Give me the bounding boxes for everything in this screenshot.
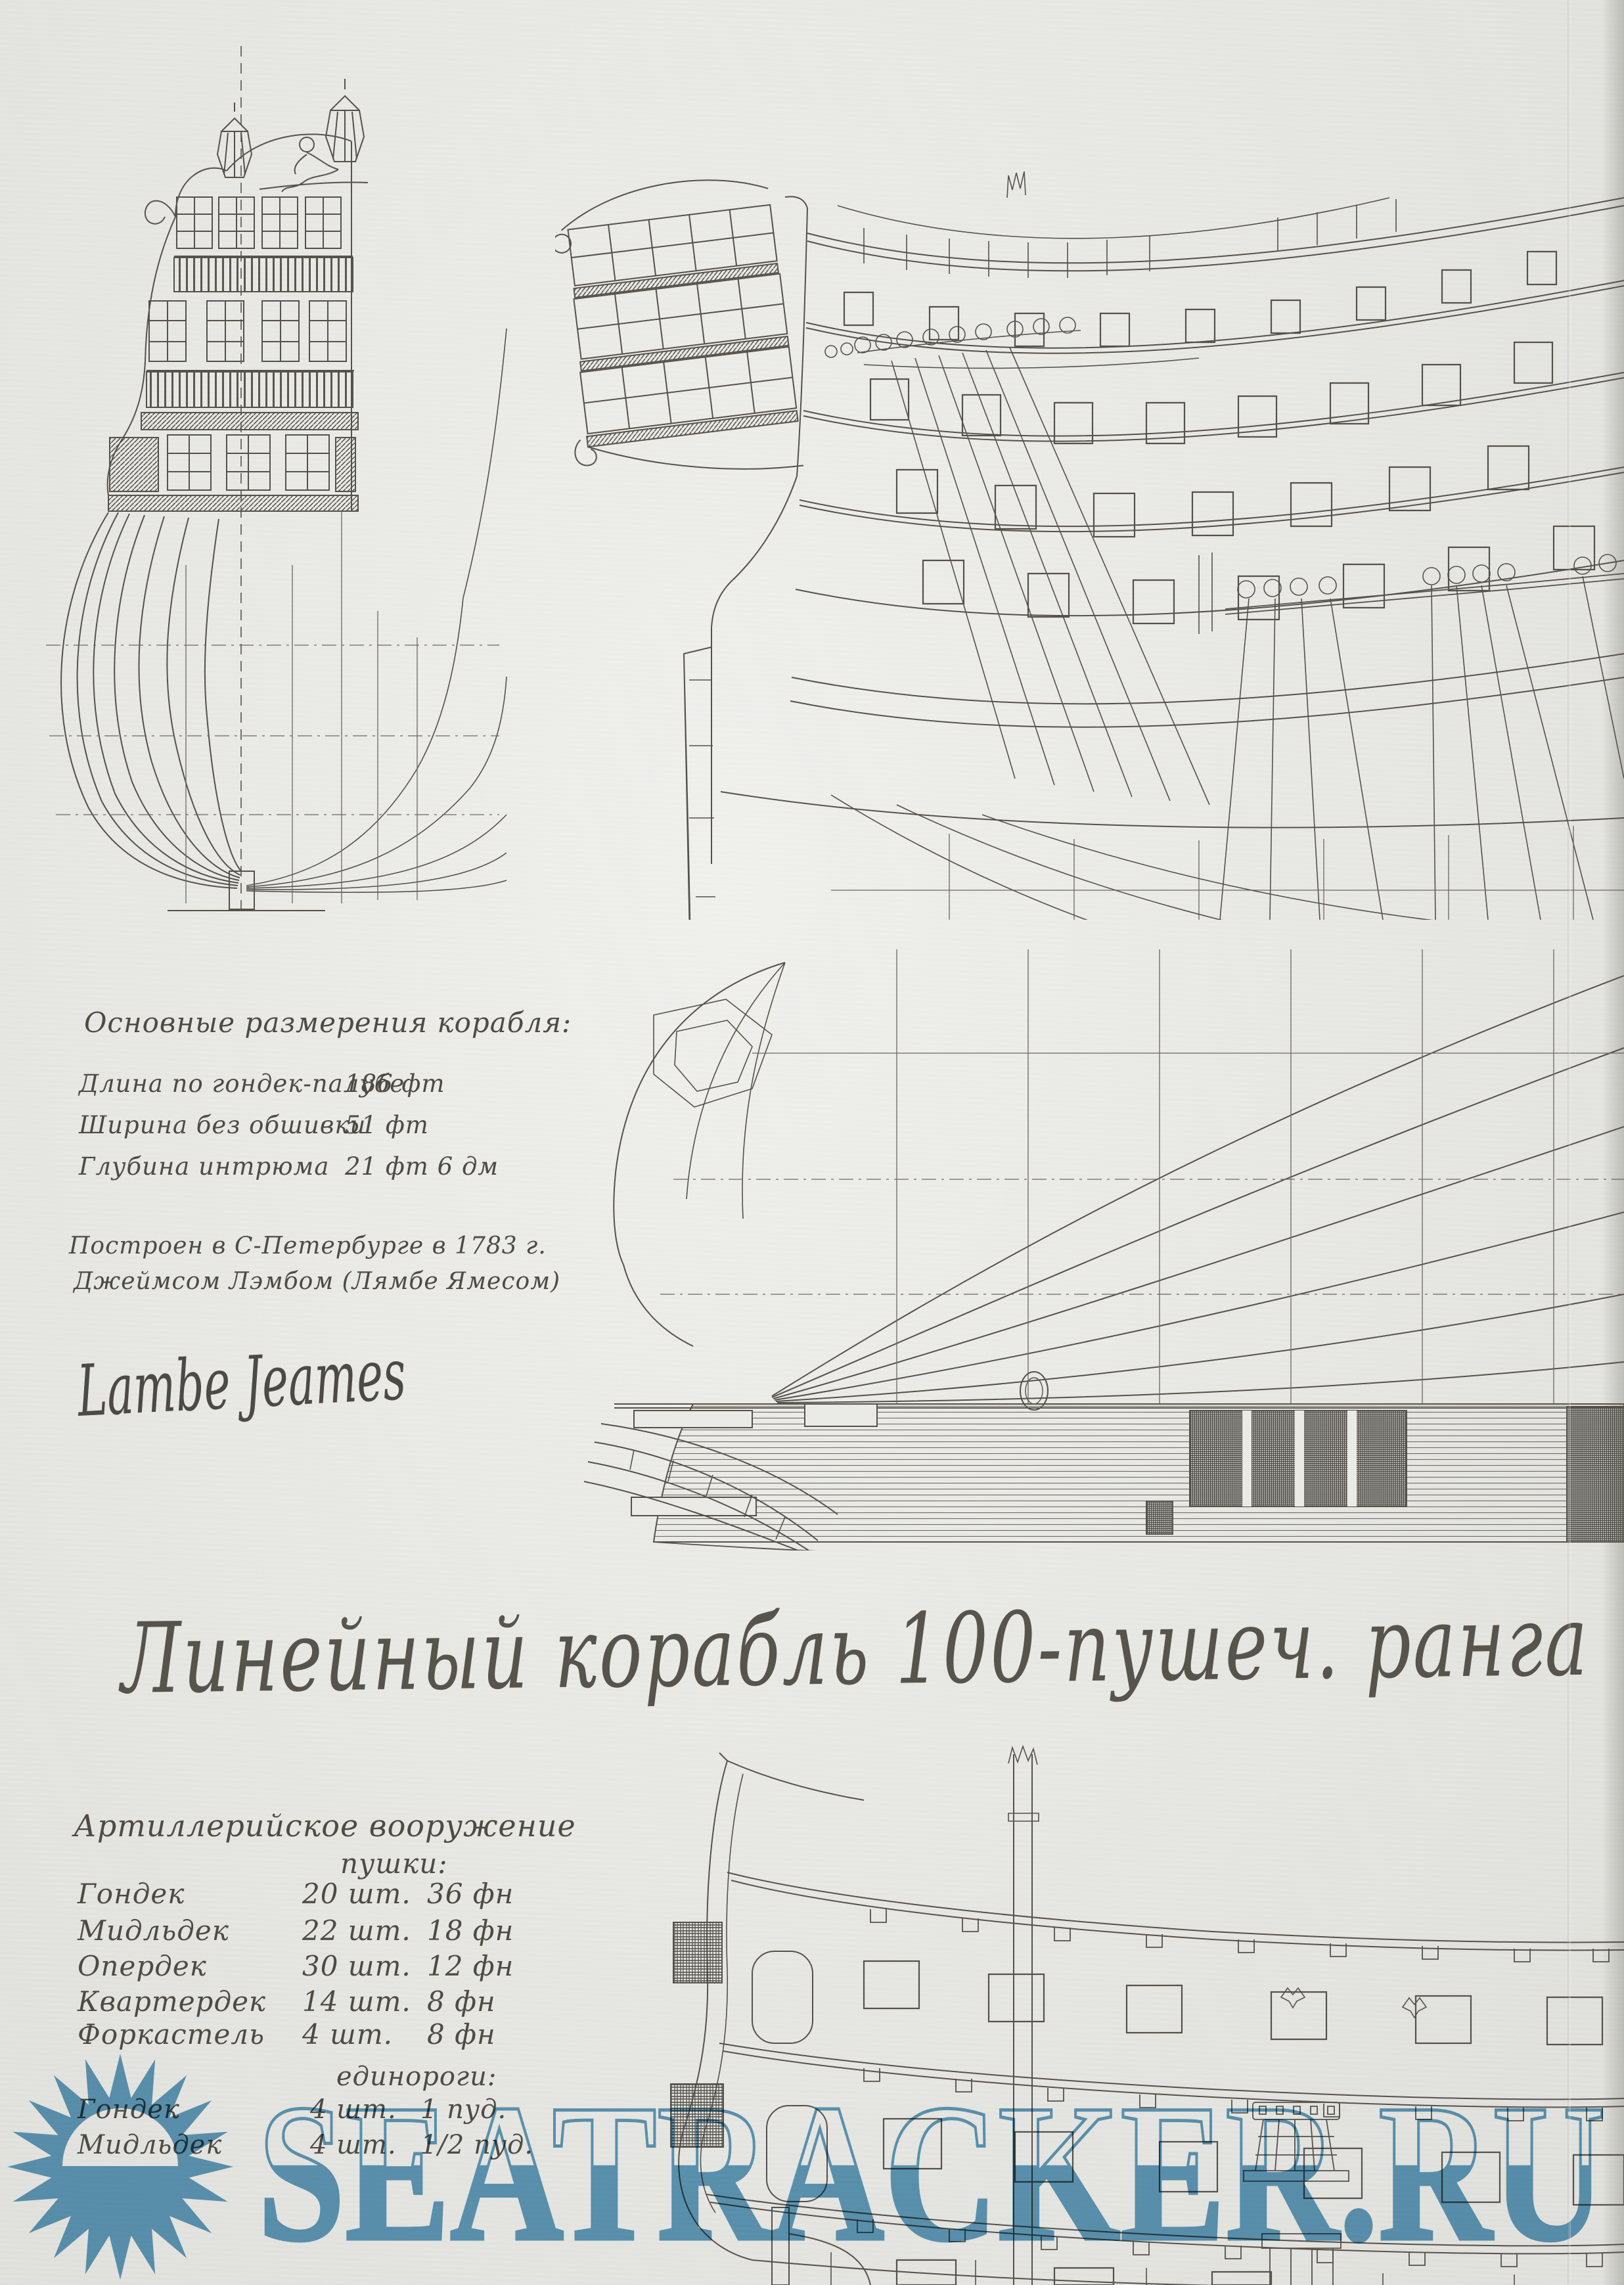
gun-qty: 22 шт. — [302, 1914, 411, 1947]
unicorn-row: Мидльдек 4 шт. 1/2 пуд. — [78, 2130, 577, 2160]
inboard-profile-drawing — [555, 1734, 1624, 2285]
unicorn-qty: 4 шт. — [310, 2130, 397, 2160]
dimensions-heading: Основные размерения корабля: — [84, 1007, 572, 1039]
dimension-label: Глубина интрюма — [79, 1152, 329, 1181]
builder-signature: Lambe Jeames — [69, 1324, 450, 1462]
gun-deck: Гондек — [78, 1878, 185, 1910]
half-breadth-plan-drawing — [555, 936, 1624, 1550]
gun-row: Мидльдек 22 шт. 18 фн — [78, 1914, 577, 1947]
stern-lantern-icon — [217, 79, 364, 177]
gun-qty: 4 шт. — [302, 2018, 393, 2050]
gun-qty: 14 шт. — [302, 1985, 411, 2018]
dimension-value: 21 фт 6 дм — [345, 1152, 499, 1181]
gun-caliber: 8 фн — [427, 1985, 496, 2018]
guns-subheading: пушки: — [340, 1847, 447, 1880]
unicorn-caliber: 1/2 пуд. — [420, 2130, 533, 2160]
gun-row: Квартердек 14 шт. 8 фн — [78, 1985, 577, 2018]
gun-caliber: 36 фн — [427, 1878, 514, 1910]
gun-deck: Мидльдек — [78, 1914, 229, 1947]
armament-heading: Артиллерийское вооружение — [74, 1808, 576, 1844]
unicorn-caliber: 1 пуд. — [420, 2094, 507, 2125]
dimension-row: Ширина без обшивки 51 фт — [79, 1111, 539, 1139]
dimension-value: 51 фт — [345, 1111, 429, 1139]
gun-row: Опердек 30 шт. 12 фн — [78, 1950, 577, 1982]
page-title: Линейный корабль 100-пушеч. ранга — [99, 1582, 1624, 1759]
body-plan-drawing — [10, 20, 516, 933]
capstan-icon — [1244, 2102, 1349, 2285]
page-edge-shadow — [1602, 0, 1624, 2285]
unicorn-qty: 4 шт. — [310, 2094, 397, 2125]
gun-deck: Квартердек — [78, 1985, 266, 2018]
gun-deck: Форкастель — [78, 2018, 265, 2050]
dimension-row: Глубина интрюма 21 фт 6 дм — [79, 1152, 539, 1181]
scanned-ship-plan-page: Основные размерения корабля: Длина по го… — [0, 0, 1624, 2285]
gun-caliber: 8 фн — [427, 2018, 496, 2050]
gun-caliber: 18 фн — [427, 1914, 514, 1947]
gun-row: Форкастель 4 шт. 8 фн — [78, 2018, 577, 2050]
dimension-value: 186 фт — [345, 1070, 445, 1098]
gun-caliber: 12 фн — [427, 1950, 514, 1982]
signature-text: Lambe Jeames — [75, 1334, 408, 1433]
sheer-plan-drawing — [555, 135, 1624, 920]
unicorns-subheading: единороги: — [336, 2062, 497, 2092]
unicorn-deck: Гондек — [78, 2094, 180, 2125]
sun-logo — [7, 2054, 233, 2280]
gun-deck: Опердек — [78, 1950, 207, 1982]
paper-crease — [1568, 0, 1571, 2285]
page-title-text: Линейный корабль 100-пушеч. ранга — [118, 1585, 1590, 1715]
gun-row: Гондек 20 шт. 36 фн — [78, 1878, 577, 1910]
provenance-line-2: Джеймсом Лэмбом (Лямбе Ямесом) — [74, 1268, 560, 1295]
gun-qty: 20 шт. — [302, 1878, 411, 1910]
gun-qty: 30 шт. — [302, 1950, 411, 1982]
provenance-line-1: Построен в С-Петербурге в 1783 г. — [69, 1233, 547, 1259]
unicorn-row: Гондек 4 шт. 1 пуд. — [78, 2094, 577, 2125]
unicorn-deck: Мидльдек — [78, 2130, 222, 2160]
dimension-row: Длина по гондек-палубе 186 фт — [79, 1070, 539, 1098]
dimension-label: Ширина без обшивки — [79, 1111, 366, 1139]
